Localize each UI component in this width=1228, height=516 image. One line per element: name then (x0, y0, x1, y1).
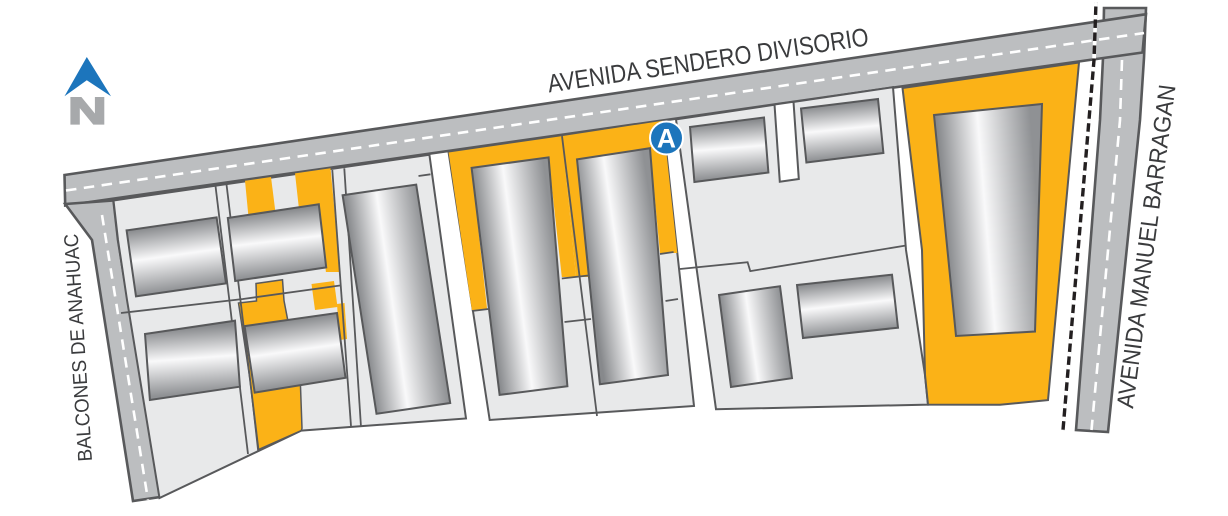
svg-text:BALCONES DE ANAHUAC: BALCONES DE ANAHUAC (61, 233, 97, 462)
svg-text:A: A (657, 124, 676, 154)
